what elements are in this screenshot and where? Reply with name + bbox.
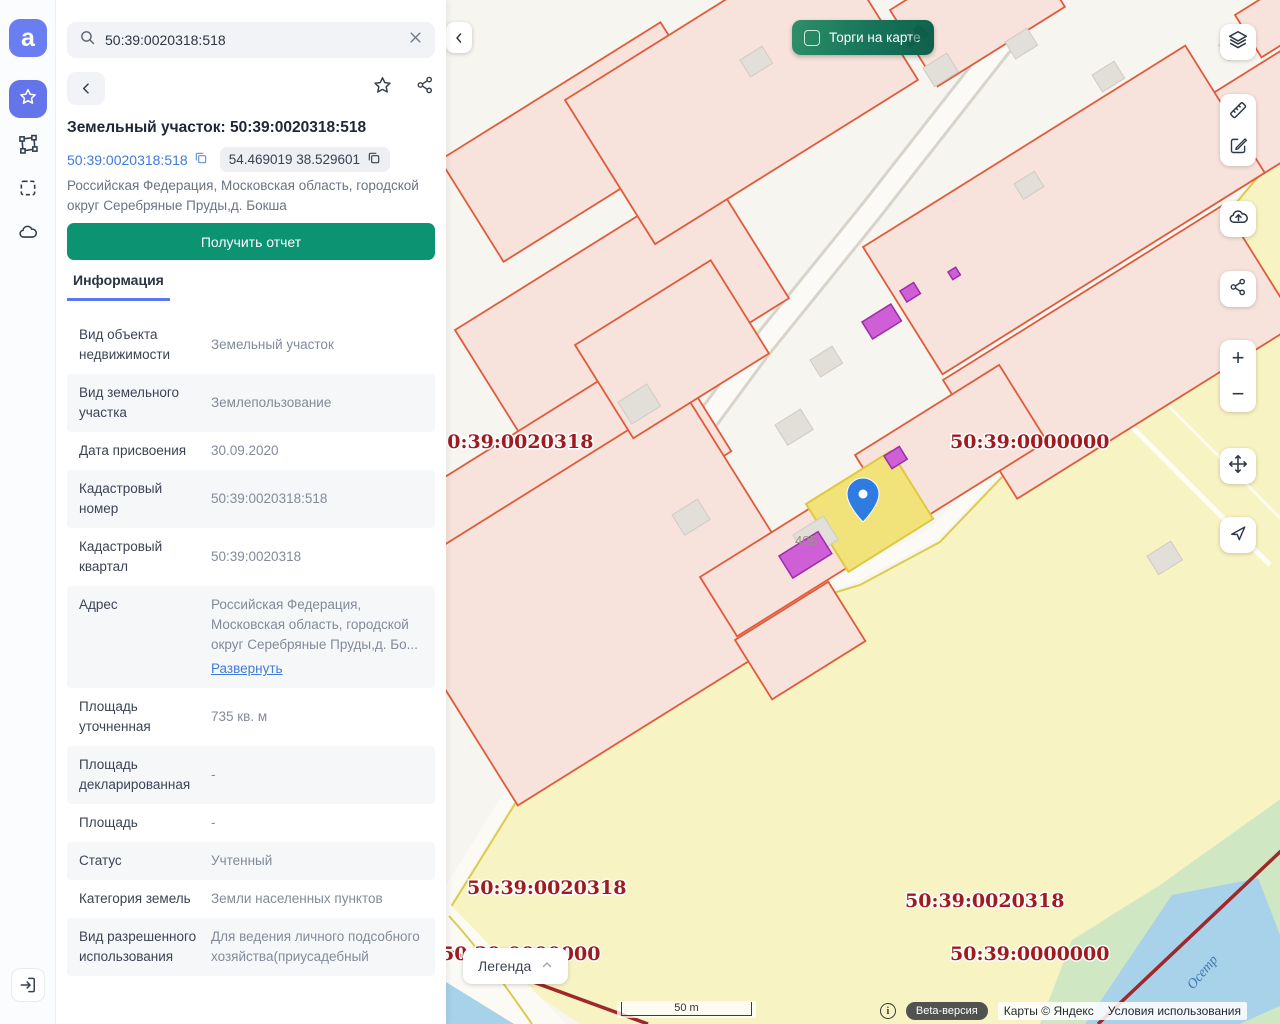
page-title: Земельный участок: 50:39:0020318:518 <box>67 119 439 137</box>
pan-icon <box>1227 453 1249 480</box>
edit-icon <box>1228 135 1249 161</box>
sidebar-item-favorites[interactable] <box>9 80 47 118</box>
sidebar-item-polygon-tool[interactable] <box>9 127 47 165</box>
upload-button[interactable] <box>1220 201 1256 237</box>
cloud-icon <box>17 221 39 248</box>
table-row: Кадастровый номер 50:39:0020318:518 <box>67 470 435 528</box>
dashed-square-icon <box>18 178 38 203</box>
collapse-panel-button[interactable] <box>446 22 472 53</box>
sidebar-item-cloud[interactable] <box>9 215 47 253</box>
layers-icon <box>1227 29 1249 56</box>
map-attribution: Карты © Яндекс Условия использования <box>998 1002 1247 1020</box>
layers-button[interactable] <box>1220 24 1256 60</box>
get-report-button[interactable]: Получить отчет <box>67 223 435 260</box>
ruler-icon <box>1227 99 1249 126</box>
table-row: Вид разрешенного использования Для веден… <box>67 918 435 976</box>
info-icon[interactable]: i <box>880 1003 896 1019</box>
terms-of-use-link[interactable]: Условия использования <box>1108 1004 1241 1018</box>
yandex-copyright-link[interactable]: Карты © Яндекс <box>1004 1004 1094 1018</box>
share-icon[interactable] <box>415 75 435 101</box>
app-window: a <box>0 0 1280 1024</box>
star-icon <box>18 87 38 112</box>
table-row: Вид объекта недвижимости Земельный участ… <box>67 316 435 374</box>
icon-rail: a <box>0 0 56 1024</box>
favorite-star-icon[interactable] <box>372 75 393 101</box>
info-table: Вид объекта недвижимости Земельный участ… <box>67 316 435 976</box>
table-row: Вид земельного участка Землепользование <box>67 374 435 432</box>
search-icon <box>79 29 96 51</box>
sign-in-icon[interactable] <box>11 968 45 1002</box>
svg-text:50:39:0000000: 50:39:0000000 <box>950 943 1109 965</box>
trades-on-map-toggle[interactable]: Торги на карте <box>792 20 934 55</box>
detail-panel: Земельный участок: 50:39:0020318:518 50:… <box>56 0 446 1024</box>
zoom-out-button[interactable]: − <box>1220 376 1256 412</box>
table-row: Дата присвоения 30.09.2020 <box>67 432 435 470</box>
polygon-icon <box>17 133 39 160</box>
svg-text:50:39:0020318: 50:39:0020318 <box>467 877 626 899</box>
chevron-up-icon <box>541 958 553 974</box>
gavel-icon <box>892 20 932 55</box>
table-row: Категория земель Земли населенных пункто… <box>67 880 435 918</box>
search-bar[interactable] <box>67 22 435 58</box>
cloud-upload-icon <box>1227 205 1250 233</box>
back-button[interactable] <box>67 72 105 105</box>
locate-icon <box>1228 523 1248 548</box>
expand-address-link[interactable]: Развернуть <box>211 659 283 679</box>
share-map-button[interactable] <box>1220 271 1256 307</box>
draw-edit-button[interactable] <box>1220 130 1256 166</box>
close-icon[interactable] <box>408 30 423 50</box>
table-row: Статус Учтенный <box>67 842 435 880</box>
house-number-label: 40Б <box>795 533 818 548</box>
table-row: Площадь декларированная - <box>67 746 435 804</box>
copy-icon[interactable] <box>367 151 381 168</box>
sidebar-item-area-select[interactable] <box>9 171 47 209</box>
object-address: Российская Федерация, Московская область… <box>67 176 437 216</box>
tab-information[interactable]: Информация <box>67 272 170 301</box>
app-logo[interactable]: a <box>9 19 47 57</box>
trades-checkbox[interactable] <box>804 30 820 46</box>
copy-icon[interactable] <box>194 151 208 168</box>
svg-text:50:39:0020318: 50:39:0020318 <box>446 431 593 453</box>
cadastral-number-link[interactable]: 50:39:0020318:518 <box>67 152 188 168</box>
beta-badge: Beta-версия <box>906 1002 988 1020</box>
measure-button[interactable] <box>1220 94 1256 130</box>
minus-icon: − <box>1232 383 1245 405</box>
table-row: Площадь уточненная 735 кв. м <box>67 688 435 746</box>
search-input[interactable] <box>105 32 399 48</box>
plus-icon: + <box>1232 347 1245 369</box>
table-row: Кадастровый квартал 50:39:0020318 <box>67 528 435 586</box>
scale-label: 50 m <box>621 1002 752 1016</box>
legend-button[interactable]: Легенда <box>463 948 568 984</box>
coordinates-value[interactable]: 54.469019 38.529601 <box>229 152 360 167</box>
share-icon <box>1228 277 1248 302</box>
map-tiles: 50:39:0020318 50:39:0000000 50:39:002031… <box>446 0 1280 1024</box>
table-row-address: Адрес Российская Федерация, Московская о… <box>67 586 435 688</box>
table-row: Площадь - <box>67 804 435 842</box>
scale-bar: 50 m <box>617 1001 756 1018</box>
locate-me-button[interactable] <box>1220 517 1256 553</box>
pan-mode-button[interactable] <box>1220 448 1256 484</box>
zoom-in-button[interactable]: + <box>1220 340 1256 376</box>
svg-text:50:39:0000000: 50:39:0000000 <box>950 431 1109 453</box>
map-canvas[interactable]: 50:39:0020318 50:39:0000000 50:39:002031… <box>446 0 1280 1024</box>
svg-text:50:39:0020318: 50:39:0020318 <box>905 890 1064 912</box>
